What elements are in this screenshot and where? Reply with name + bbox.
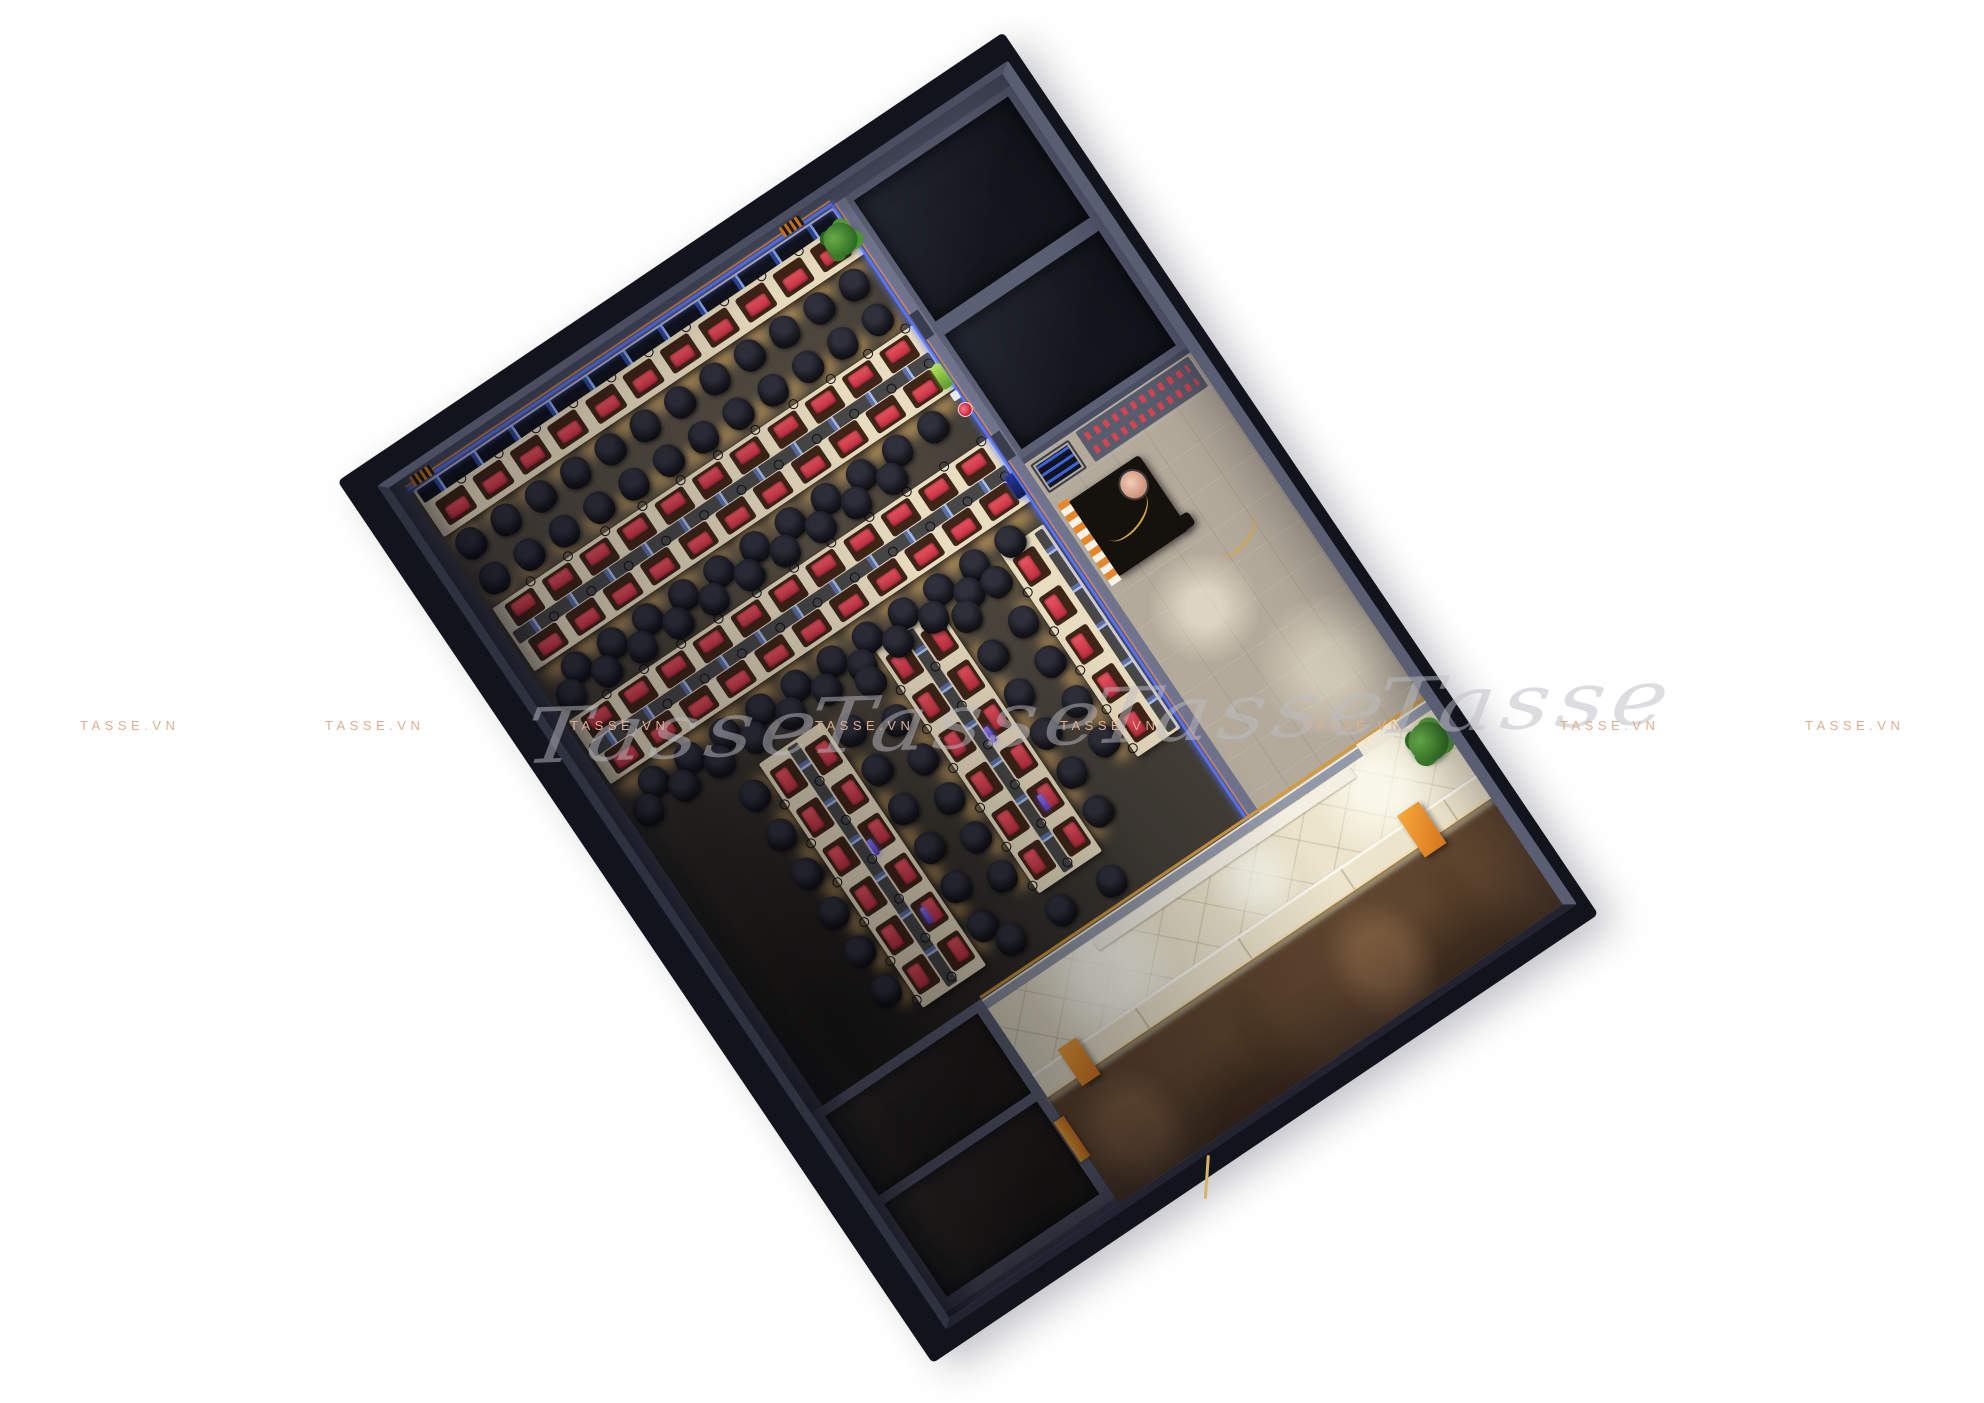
mousepad — [735, 604, 763, 629]
mousepad — [547, 567, 575, 592]
mousepad — [885, 502, 913, 527]
mousepad — [800, 805, 825, 833]
mousepad — [969, 770, 994, 798]
mousepad — [612, 745, 640, 770]
mousepad — [744, 293, 772, 318]
mousepad — [884, 339, 912, 364]
mousepad — [1043, 593, 1068, 621]
mousepad — [923, 477, 951, 502]
mousepad — [773, 578, 801, 603]
mousepad — [650, 719, 678, 744]
mousepad — [996, 809, 1021, 837]
gaming-cafe-3d-model — [377, 60, 1577, 1330]
mousepad — [837, 593, 865, 618]
brand-watermark: TASSE.VN — [325, 718, 424, 733]
mousepad — [1017, 554, 1042, 582]
mousepad — [810, 553, 838, 578]
mousepad — [809, 390, 837, 415]
mousepad — [698, 629, 726, 654]
mousepad — [912, 542, 940, 567]
mousepad — [774, 766, 799, 794]
mousepad — [649, 556, 677, 581]
mousepad — [631, 369, 659, 394]
mousepad — [761, 480, 789, 505]
mousepad — [687, 694, 715, 719]
mousepad — [847, 364, 875, 389]
mousepad — [724, 505, 752, 530]
mousepad — [573, 607, 601, 632]
mousepad — [585, 705, 613, 730]
mousepad — [853, 884, 878, 912]
mousepad — [911, 379, 939, 404]
brand-watermark: TASSE.VN — [1560, 718, 1659, 733]
mousepad — [622, 516, 650, 541]
mousepad — [1096, 671, 1121, 699]
mousepad — [916, 691, 941, 719]
mousepad — [659, 491, 687, 516]
mousepad — [509, 592, 537, 617]
mousepad — [950, 517, 978, 542]
mousepad — [960, 452, 988, 477]
mousepad — [1070, 632, 1095, 660]
mousepad — [827, 845, 852, 873]
mousepad — [956, 664, 981, 692]
mousepad — [725, 669, 753, 694]
mousepad — [623, 680, 651, 705]
mousepad — [669, 343, 697, 368]
mousepad — [1022, 848, 1047, 876]
mousepad — [734, 440, 762, 465]
mousepad — [686, 531, 714, 556]
mousepad — [481, 470, 509, 495]
mousepad — [943, 730, 968, 758]
mousepad — [660, 654, 688, 679]
mousepad — [874, 404, 902, 429]
floor-plan — [389, 74, 1563, 1318]
mousepad — [556, 419, 584, 444]
mousepad — [611, 581, 639, 606]
mousepad — [1122, 710, 1147, 738]
mousepad — [1009, 743, 1034, 771]
mousepad — [875, 567, 903, 592]
mousepad — [893, 857, 918, 885]
mousepad — [594, 394, 622, 419]
mousepad — [772, 415, 800, 440]
mousepad — [848, 528, 876, 553]
mousepad — [880, 923, 905, 951]
mousepad — [697, 466, 725, 491]
render-canvas: TasseTasseTasseTasse TASSE.VNTASSE.VNTAS… — [0, 0, 1984, 1403]
brand-watermark: TASSE.VN — [80, 718, 179, 733]
mousepad — [800, 618, 828, 643]
mousepad — [946, 935, 971, 963]
mousepad — [584, 542, 612, 567]
mousepad — [762, 643, 790, 668]
mousepad — [840, 779, 865, 807]
mousepad — [1062, 821, 1087, 849]
mousepad — [536, 632, 564, 657]
mousepad — [781, 267, 809, 292]
mousepad — [799, 455, 827, 480]
mousepad — [906, 962, 931, 990]
mousepad — [444, 495, 472, 520]
mousepad — [814, 739, 839, 767]
mousepad — [836, 429, 864, 454]
mousepad — [519, 445, 547, 470]
mousepad — [987, 492, 1015, 517]
brand-watermark: TASSE.VN — [1805, 718, 1904, 733]
mousepad — [706, 318, 734, 343]
